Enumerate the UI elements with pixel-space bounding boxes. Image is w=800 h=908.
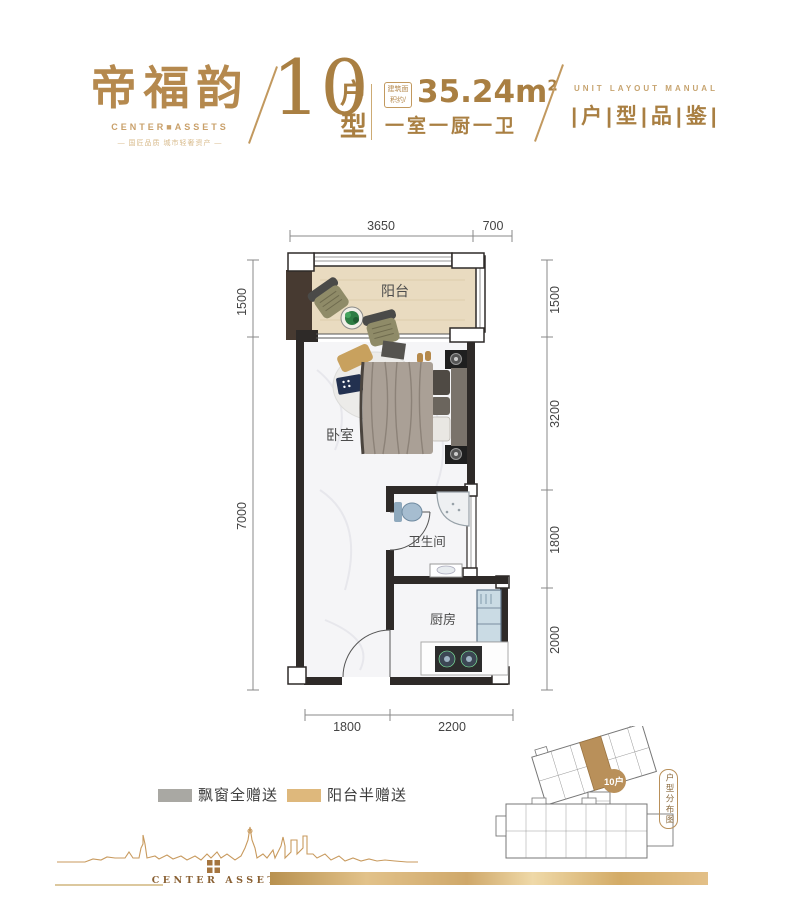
footer-rule-left (55, 884, 163, 886)
area-prefix-box: 建筑面 积约/ (384, 82, 412, 108)
city-skyline (55, 818, 420, 866)
bed (361, 362, 467, 454)
balcony-plant-table (341, 307, 363, 329)
dim-right-3: 1800 (548, 526, 562, 554)
dim-right-1: 1500 (548, 286, 562, 314)
brand-seal-icon (207, 860, 220, 873)
balcony-top-window (314, 253, 452, 266)
wall-bottom-left (304, 677, 342, 685)
kitchen-counter (421, 642, 508, 675)
wall-dark-left (286, 270, 312, 340)
bathroom-sink (430, 564, 462, 577)
floorplan-drawing: 阳台 卧室 卫生间 厨房 3650 700 1500 7000 1500 320… (225, 190, 605, 735)
label-kitchen: 厨房 (430, 612, 456, 627)
footer-gold-bar (270, 872, 708, 885)
unit-badge-label: 10户 (604, 776, 624, 788)
bathroom-left-wall-lower (386, 550, 394, 580)
wall-bottom-right (390, 677, 508, 685)
brand-logo: 帝福韵 (70, 52, 270, 118)
nightstand-top (445, 350, 467, 369)
fridge (477, 590, 501, 642)
dim-bottom-1: 1800 (333, 720, 361, 734)
floorplan-poster: 帝福韵 CENTER■ASSETS — 国匠品质 城市轻奢资产 — 10 户 型… (0, 0, 800, 908)
dim-left-1: 1500 (235, 288, 249, 316)
dim-right-4: 2000 (548, 626, 562, 654)
divider-wall-left (296, 330, 318, 342)
header-divider (371, 84, 372, 140)
wall-right-bedroom (467, 342, 475, 496)
label-balcony: 阳台 (381, 283, 409, 299)
label-bathroom: 卫生间 (408, 535, 446, 549)
toilet (394, 502, 422, 522)
dim-top-1: 3650 (367, 219, 395, 233)
area-value: 35.24m2 (417, 74, 558, 110)
area-prefix-line1: 建筑面 (385, 85, 411, 96)
legend-swatch-baywindow (158, 789, 192, 802)
nightstand-bottom (445, 445, 467, 464)
collection-title-cn: |户|型|品|鉴| (566, 100, 726, 130)
room-configuration: 一室一厨一卫 (385, 111, 517, 138)
bathroom-left-wall-upper (386, 486, 394, 512)
dim-right-2: 3200 (548, 400, 562, 428)
area-prefix-line2: 积约/ (385, 96, 411, 107)
brand-tagline: — 国匠品质 城市轻奢资产 — (62, 138, 278, 148)
collection-title-en: UNIT LAYOUT MANUAL (566, 84, 726, 93)
wall-left (296, 342, 304, 672)
footer-brand: CENTER ASSETS (150, 875, 290, 886)
dim-bottom-2: 2200 (438, 720, 466, 734)
kitchen-left-wall (386, 584, 394, 630)
distribution-map-capsule: 户型分布图 (659, 769, 678, 829)
building-wing-lower (496, 798, 673, 858)
cushion-gray (381, 341, 406, 360)
legend-label-baywindow: 飘窗全赠送 (198, 784, 278, 805)
dim-left-2: 7000 (235, 502, 249, 530)
legend-swatch-balcony (287, 789, 321, 802)
area-number: 35.24m (417, 74, 547, 110)
legend-label-balcony: 阳台半赠送 (327, 784, 407, 805)
unit-distribution-map: 10户 (492, 726, 742, 868)
unit-label-bottom: 型 (340, 105, 367, 144)
brand-logo-en: CENTER■ASSETS (70, 122, 270, 132)
dim-top-2: 700 (483, 219, 504, 233)
label-bedroom: 卧室 (326, 427, 354, 443)
